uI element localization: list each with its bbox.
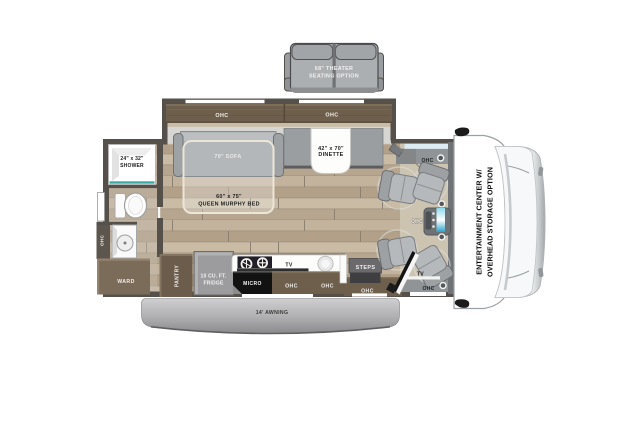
svg-text:SEATING OPTION: SEATING OPTION — [309, 74, 359, 80]
svg-text:STEPS: STEPS — [356, 265, 376, 271]
svg-text:60" x 75": 60" x 75" — [216, 194, 242, 200]
svg-text:10 CU. FT.: 10 CU. FT. — [201, 274, 227, 280]
svg-text:TV: TV — [417, 271, 424, 277]
svg-text:OHC: OHC — [215, 113, 228, 119]
svg-text:24" x 32": 24" x 32" — [120, 156, 144, 162]
svg-text:OHC: OHC — [325, 113, 338, 119]
svg-text:WARD: WARD — [117, 279, 134, 285]
svg-text:DINETTE: DINETTE — [318, 152, 343, 158]
svg-text:MICRO: MICRO — [243, 281, 262, 287]
svg-text:OHC: OHC — [321, 284, 334, 290]
svg-text:FRIDGE: FRIDGE — [203, 281, 224, 287]
svg-text:SHOWER: SHOWER — [120, 163, 144, 169]
svg-text:14' AWNING: 14' AWNING — [256, 310, 289, 316]
svg-text:OVERHEAD STORAGE OPTION: OVERHEAD STORAGE OPTION — [486, 167, 495, 277]
svg-text:OHC: OHC — [422, 286, 434, 292]
svg-text:OHC: OHC — [285, 284, 298, 290]
svg-text:68" THEATER: 68" THEATER — [315, 66, 353, 72]
svg-text:PANTRY: PANTRY — [175, 265, 181, 288]
svg-text:OHC: OHC — [411, 219, 423, 225]
svg-text:ENTERTAINMENT CENTER W/: ENTERTAINMENT CENTER W/ — [475, 169, 484, 275]
svg-text:TV: TV — [285, 263, 292, 269]
svg-text:QUEEN MURPHY BED: QUEEN MURPHY BED — [198, 202, 260, 208]
svg-text:70" SOFA: 70" SOFA — [214, 154, 241, 160]
svg-text:OHC: OHC — [100, 235, 105, 246]
